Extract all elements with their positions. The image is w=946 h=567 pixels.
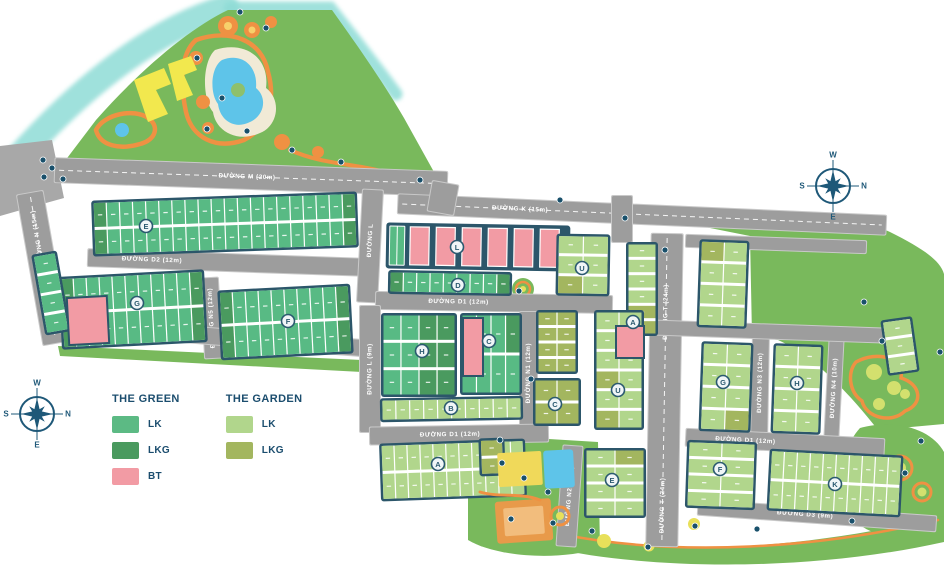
plot-number-mark xyxy=(137,213,141,214)
road-label: ĐƯỜNG L (9m) xyxy=(366,343,374,395)
plot-number-mark xyxy=(401,409,405,410)
park-feature xyxy=(274,134,290,150)
compass-letter: S xyxy=(799,182,805,191)
plot-number-mark xyxy=(703,449,707,450)
plot-number-mark xyxy=(812,496,816,497)
plot-number-mark xyxy=(256,236,260,237)
block-label-letter: C xyxy=(552,400,558,409)
legend-swatch-garden-lkg xyxy=(226,442,253,459)
plot-number-mark xyxy=(276,305,280,306)
plot-number-mark xyxy=(163,212,167,213)
compass-letter: E xyxy=(34,441,40,450)
plot-number-mark xyxy=(501,283,505,284)
plot-number-mark xyxy=(125,240,129,241)
legend-item: BT xyxy=(112,468,180,485)
bt-villa-plot xyxy=(616,326,644,358)
legend-swatch-garden-lk xyxy=(226,416,253,433)
bt-villa-plot xyxy=(67,296,109,345)
block-label-letter: D xyxy=(455,281,461,290)
block-label-letter: E xyxy=(609,476,614,485)
plot-number-mark xyxy=(470,408,474,409)
plot-number-mark xyxy=(434,282,438,283)
plot-number-mark xyxy=(91,293,95,294)
plot-number-mark xyxy=(775,464,779,465)
plot-number-mark xyxy=(243,236,247,237)
plot-number-mark xyxy=(605,360,609,361)
plot-number-mark xyxy=(490,465,494,466)
plot-number-mark xyxy=(710,251,714,252)
amenity-marker xyxy=(497,437,503,443)
plot-number-mark xyxy=(444,327,448,328)
plot-number-mark xyxy=(564,365,568,366)
amenity-marker xyxy=(622,215,628,221)
road-label: ĐƯỜNG N1 (12m) xyxy=(524,343,532,403)
park-feature xyxy=(556,512,564,520)
plot-number-mark xyxy=(628,379,632,380)
plot-number-mark xyxy=(289,304,293,305)
block-label: U xyxy=(576,262,589,275)
block-label-letter: H xyxy=(794,379,799,388)
plot-number-mark xyxy=(511,333,515,334)
plot-number-mark xyxy=(474,283,478,284)
plot-number-mark xyxy=(451,483,455,484)
road: ĐƯỜNG L (9m) xyxy=(359,305,381,433)
amenity-marker xyxy=(589,528,595,534)
plot-number-mark xyxy=(627,474,631,475)
plot-number-mark xyxy=(400,485,404,486)
plot-number-mark xyxy=(598,457,602,458)
block-label-letter: C xyxy=(486,337,492,346)
compass-rose: WNES xyxy=(3,379,71,450)
plot-number-mark xyxy=(143,290,147,291)
plot-number-mark xyxy=(387,409,391,410)
plot-number-mark xyxy=(130,291,134,292)
amenity-marker xyxy=(49,165,55,171)
plot-number-mark xyxy=(734,500,738,501)
park-feature xyxy=(597,534,611,548)
road: ĐƯỜNG L xyxy=(356,189,384,304)
plot-number-mark xyxy=(322,233,326,234)
plot-number-mark xyxy=(569,244,573,245)
plot-number-mark xyxy=(268,208,272,209)
road-label: ĐƯỜNG T (24m) xyxy=(658,478,667,534)
plot-number-mark xyxy=(640,250,644,251)
plot-number-mark xyxy=(145,326,149,327)
plot-number-mark xyxy=(348,232,352,233)
plot-number-mark xyxy=(217,237,221,238)
plot-number-mark xyxy=(712,375,716,376)
legend-item: LKG xyxy=(226,442,303,459)
plot-number-mark xyxy=(340,301,344,302)
amenity-marker xyxy=(902,470,908,476)
plot-number-mark xyxy=(170,324,174,325)
plot-number-mark xyxy=(164,239,168,240)
plot-number-mark xyxy=(511,373,515,374)
plot-number-mark xyxy=(421,282,425,283)
plot-number-mark xyxy=(315,303,319,304)
plot-number-mark xyxy=(877,500,881,501)
amenity-marker xyxy=(754,526,760,532)
plot-number-mark xyxy=(733,273,737,274)
legend-label: BT xyxy=(148,471,162,482)
plot-number-mark xyxy=(250,306,254,307)
plot-number-mark xyxy=(335,233,339,234)
plot-number-mark xyxy=(282,235,286,236)
villa-plot xyxy=(488,228,508,266)
amenity-marker xyxy=(918,438,924,444)
plot-number-mark xyxy=(294,207,298,208)
plot-number-mark xyxy=(701,498,705,499)
amenity-marker xyxy=(338,159,344,165)
plot-number-mark xyxy=(605,340,609,341)
plot-number-mark xyxy=(628,399,632,400)
legend-swatch-green-lkg xyxy=(112,442,139,459)
legend-the-garden: THE GARDEN LK LKG xyxy=(226,393,303,494)
plot-number-mark xyxy=(426,327,430,328)
plot-number-mark xyxy=(598,508,602,509)
plot-number-mark xyxy=(568,264,572,265)
plot-number-mark xyxy=(838,498,842,499)
plot-number-mark xyxy=(801,466,805,467)
amenity-marker xyxy=(40,157,46,163)
legend-title-green: THE GREEN xyxy=(112,393,180,405)
plot-number-mark xyxy=(545,349,549,350)
plot-number-mark xyxy=(408,282,412,283)
plot-number-mark xyxy=(321,206,325,207)
plot-number-mark xyxy=(711,419,715,420)
plot-number-mark xyxy=(255,209,259,210)
plot-number-mark xyxy=(840,468,844,469)
plot-number-mark xyxy=(732,294,736,295)
plot-number-mark xyxy=(387,486,391,487)
plot-number-mark xyxy=(545,365,549,366)
plot-number-mark xyxy=(488,283,492,284)
plot-number-mark xyxy=(119,327,123,328)
amenity-marker xyxy=(263,25,269,31)
block-label: H xyxy=(791,377,804,390)
amenity-marker xyxy=(204,126,210,132)
plot-number-mark xyxy=(598,474,602,475)
plot-number-mark xyxy=(593,285,597,286)
plot-number-mark xyxy=(807,378,811,379)
plot-number-mark xyxy=(605,320,609,321)
amenity-marker xyxy=(219,95,225,101)
plot-number-mark xyxy=(177,238,181,239)
legend-item: LK xyxy=(112,416,180,433)
park-feature xyxy=(196,95,210,109)
plot-number-mark xyxy=(735,420,739,421)
legend-label: LK xyxy=(262,419,276,430)
amenity-marker xyxy=(662,247,668,253)
road xyxy=(426,180,459,216)
block-label-letter: F xyxy=(718,465,723,474)
plot-number-mark xyxy=(827,467,831,468)
amenity-building xyxy=(543,449,575,489)
block-label: C xyxy=(483,335,496,348)
plot-number-mark xyxy=(598,491,602,492)
plot-number-mark xyxy=(464,483,468,484)
block-label: C xyxy=(549,398,562,411)
park-feature xyxy=(900,389,910,399)
amenity-marker xyxy=(557,197,563,203)
plot-number-mark xyxy=(194,288,198,289)
block-label: D xyxy=(452,279,465,292)
plot-number-mark xyxy=(190,211,194,212)
master-plan-page: ĐƯỜNG M (20m)ĐƯỜNG K (15m)ĐƯỜNG N (15m)Đ… xyxy=(0,0,946,567)
plot-number-mark xyxy=(150,212,154,213)
plot-number-mark xyxy=(169,289,173,290)
road-label: ĐƯỜNG D1 (12m) xyxy=(420,430,481,439)
block-label-letter: H xyxy=(419,347,424,356)
amenity-marker xyxy=(244,128,250,134)
plot-number-mark xyxy=(413,485,417,486)
block-label: B xyxy=(445,402,458,415)
plot-number-mark xyxy=(605,399,609,400)
plot-number-mark xyxy=(709,294,713,295)
amenity-marker xyxy=(861,299,867,305)
plot-number-mark xyxy=(302,303,306,304)
park-feature xyxy=(887,381,901,395)
plot-number-mark xyxy=(111,214,115,215)
plot-number-mark xyxy=(112,241,116,242)
plot-number-mark xyxy=(853,468,857,469)
block-label: G xyxy=(131,297,144,310)
plot-number-mark xyxy=(786,495,790,496)
plot-number-mark xyxy=(627,491,631,492)
compass-letter: N xyxy=(65,410,71,419)
plot-number-mark xyxy=(892,470,896,471)
plot-number-mark xyxy=(806,400,810,401)
plot-number-mark xyxy=(138,240,142,241)
block-label: A xyxy=(627,316,640,329)
legend-label: LK xyxy=(148,419,162,430)
plot-number-mark xyxy=(229,210,233,211)
block-label-letter: A xyxy=(630,318,636,327)
plot-number-mark xyxy=(628,360,632,361)
plot-number-mark xyxy=(736,376,740,377)
plot-number-mark xyxy=(784,377,788,378)
plot-block xyxy=(536,310,578,374)
plot-number-mark xyxy=(788,465,792,466)
compass-rose: WNES xyxy=(799,151,867,222)
amenity-marker xyxy=(508,516,514,522)
legend: THE GREEN LK LKG BT THE GARDEN LK LK xyxy=(112,393,303,494)
park-feature xyxy=(918,488,927,497)
plot-number-mark xyxy=(490,482,494,483)
amenity-marker xyxy=(528,376,534,382)
plot-number-mark xyxy=(390,382,394,383)
legend-label: LKG xyxy=(148,445,170,456)
plot-number-mark xyxy=(226,341,230,342)
legend-swatch-green-lk xyxy=(112,416,139,433)
plot-number-mark xyxy=(399,457,403,458)
amenity-marker xyxy=(550,520,556,526)
plot-block xyxy=(696,239,749,329)
plot-number-mark xyxy=(386,458,390,459)
legend-label: LKG xyxy=(262,445,284,456)
plot-block xyxy=(388,270,512,296)
plot-number-mark xyxy=(304,337,308,338)
road-label: ĐƯỜNG D1 (12m) xyxy=(428,297,489,306)
plot-number-mark xyxy=(851,498,855,499)
compass-letter: E xyxy=(830,213,836,222)
plot-number-mark xyxy=(183,324,187,325)
plot-number-mark xyxy=(347,205,351,206)
compass-letter: N xyxy=(861,182,867,191)
plot-number-mark xyxy=(564,318,568,319)
plot-number-mark xyxy=(735,483,739,484)
amenity-marker xyxy=(417,177,423,183)
block-label: E xyxy=(140,220,153,233)
plot-number-mark xyxy=(269,235,273,236)
villa-plot xyxy=(514,229,534,267)
plot-number-mark xyxy=(545,318,549,319)
plot-number-mark xyxy=(307,207,311,208)
plot-number-mark xyxy=(708,315,712,316)
plot xyxy=(390,226,397,264)
plot xyxy=(397,227,404,265)
legend-item: LK xyxy=(226,416,303,433)
plot-number-mark xyxy=(265,339,269,340)
park-feature xyxy=(115,123,129,137)
plot-number-mark xyxy=(390,354,394,355)
plot-number-mark xyxy=(252,340,256,341)
plot-number-mark xyxy=(117,292,121,293)
block-label-letter: E xyxy=(143,222,148,231)
plot-number-mark xyxy=(408,327,412,328)
plot-number-mark xyxy=(593,265,597,266)
plot-number-mark xyxy=(295,234,299,235)
amenity-marker xyxy=(545,489,551,495)
block-label: H xyxy=(416,345,429,358)
plot-number-mark xyxy=(158,325,162,326)
plot-number-mark xyxy=(866,469,870,470)
plot-number-mark xyxy=(710,272,714,273)
plot-number-mark xyxy=(444,354,448,355)
amenity-marker xyxy=(60,176,66,182)
plot-number-mark xyxy=(132,327,136,328)
plot-number-mark xyxy=(733,251,737,252)
block-label: K xyxy=(829,478,842,491)
plot-number-mark xyxy=(291,338,295,339)
block-label-letter: L xyxy=(455,243,460,252)
plot-number-mark xyxy=(104,292,108,293)
plot-number-mark xyxy=(805,422,809,423)
plot-number-mark xyxy=(640,296,644,297)
amenity-marker xyxy=(937,349,943,355)
plot-number-mark xyxy=(98,214,102,215)
plot-number-mark xyxy=(328,302,332,303)
plot-number-mark xyxy=(412,457,416,458)
plot-block xyxy=(386,222,571,271)
road-label: ĐƯỜNG N3 (12m) xyxy=(755,353,764,414)
plot-number-mark xyxy=(263,305,267,306)
plot-number-mark xyxy=(203,211,207,212)
plot-block xyxy=(91,191,359,256)
park-feature xyxy=(224,22,232,30)
plot-number-mark xyxy=(640,281,644,282)
plot-number-mark xyxy=(329,336,333,337)
plot-number-mark xyxy=(713,353,717,354)
plot-number-mark xyxy=(484,408,488,409)
plot-number-mark xyxy=(308,234,312,235)
legend-the-green: THE GREEN LK LKG BT xyxy=(112,393,180,494)
block-label-letter: B xyxy=(448,404,454,413)
plot-number-mark xyxy=(737,354,741,355)
bt-villa-plot xyxy=(463,318,483,376)
plot-number-mark xyxy=(498,408,502,409)
plot-number-mark xyxy=(784,355,788,356)
park-feature xyxy=(231,83,245,97)
plot-number-mark xyxy=(394,281,398,282)
plot-number-mark xyxy=(216,210,220,211)
plot-number-mark xyxy=(879,470,883,471)
plot-number-mark xyxy=(640,265,644,266)
plot-number-mark xyxy=(224,307,228,308)
block-label-letter: F xyxy=(286,317,291,326)
plot-number-mark xyxy=(545,334,549,335)
block-label: F xyxy=(714,463,727,476)
compass-letter: W xyxy=(33,379,41,388)
plot-number-mark xyxy=(342,335,346,336)
plot-number-mark xyxy=(450,455,454,456)
plot-number-mark xyxy=(605,419,609,420)
block-label: F xyxy=(282,315,295,328)
plot-number-mark xyxy=(825,497,829,498)
plot-number-mark xyxy=(242,209,246,210)
plot-number-mark xyxy=(731,316,735,317)
block-label: L xyxy=(451,241,464,254)
plot-number-mark xyxy=(489,447,493,448)
amenity-marker xyxy=(41,174,47,180)
plot-number-mark xyxy=(99,241,103,242)
compass-letter: W xyxy=(829,151,837,160)
plot-number-mark xyxy=(627,457,631,458)
villa-plot xyxy=(410,227,430,265)
amenity-marker xyxy=(645,544,651,550)
road-surface xyxy=(428,181,459,215)
plot-number-mark xyxy=(176,211,180,212)
block-label-letter: A xyxy=(435,460,441,469)
legend-title-garden: THE GARDEN xyxy=(226,393,303,405)
plot-number-mark xyxy=(278,339,282,340)
plot-number-mark xyxy=(627,508,631,509)
plot-number-mark xyxy=(566,390,570,391)
plot-number-mark xyxy=(425,484,429,485)
block-label-letter: K xyxy=(832,480,838,489)
amenity-marker xyxy=(237,9,243,15)
plot-number-mark xyxy=(890,500,894,501)
plot-number-mark xyxy=(736,450,740,451)
plot-number-mark xyxy=(334,206,338,207)
villa-plot xyxy=(462,228,482,266)
plot-number-mark xyxy=(566,413,570,414)
block-label: E xyxy=(606,474,619,487)
plot-number-mark xyxy=(196,323,200,324)
block-label-letter: G xyxy=(134,299,140,308)
plot-number-mark xyxy=(544,390,548,391)
plot-number-mark xyxy=(496,373,500,374)
plot-number-mark xyxy=(438,484,442,485)
plot-number-mark xyxy=(568,284,572,285)
plot-number-mark xyxy=(151,239,155,240)
plot-number-mark xyxy=(230,237,234,238)
amenity-marker xyxy=(521,475,527,481)
amenity-marker xyxy=(289,147,295,153)
plot-number-mark xyxy=(463,455,467,456)
plot-number-mark xyxy=(814,466,818,467)
plot-number-mark xyxy=(477,482,481,483)
